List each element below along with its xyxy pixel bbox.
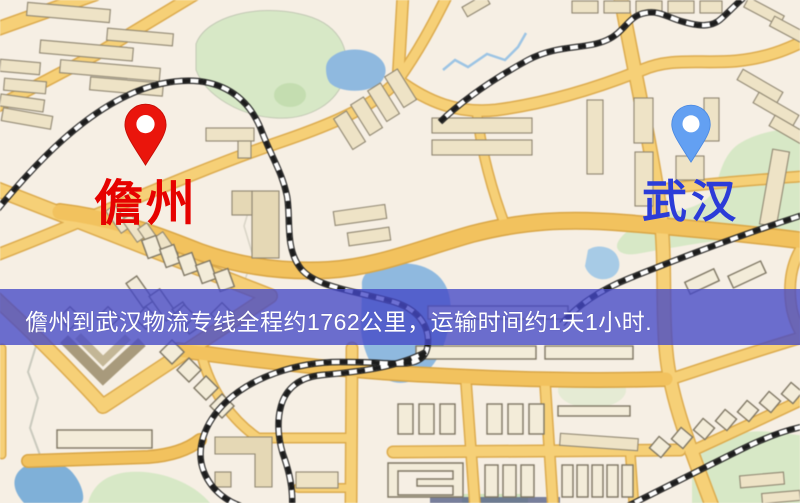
logistics-map-image: 儋州到武汉物流专线全程约1762公里，运输时间约1天1小时. 儋州 武汉 <box>0 0 800 503</box>
destination-location-pin-icon <box>669 103 713 165</box>
route-info-text: 儋州到武汉物流专线全程约1762公里，运输时间约1天1小时. <box>25 303 652 337</box>
destination-city-label: 武汉 <box>642 180 740 225</box>
origin-city-label: 儋州 <box>94 179 198 228</box>
origin-location-pin-icon <box>122 102 169 168</box>
route-info-banner: 儋州到武汉物流专线全程约1762公里，运输时间约1天1小时. <box>0 289 800 345</box>
map-canvas <box>0 0 800 503</box>
